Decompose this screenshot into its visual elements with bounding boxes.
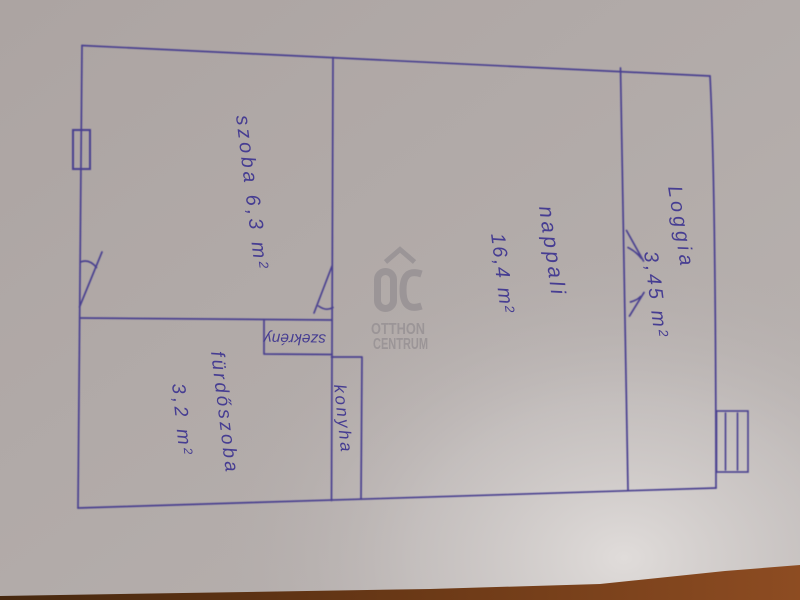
svg-text:szekrény: szekrény <box>263 329 327 347</box>
svg-text:CENTRUM: CENTRUM <box>373 336 428 353</box>
